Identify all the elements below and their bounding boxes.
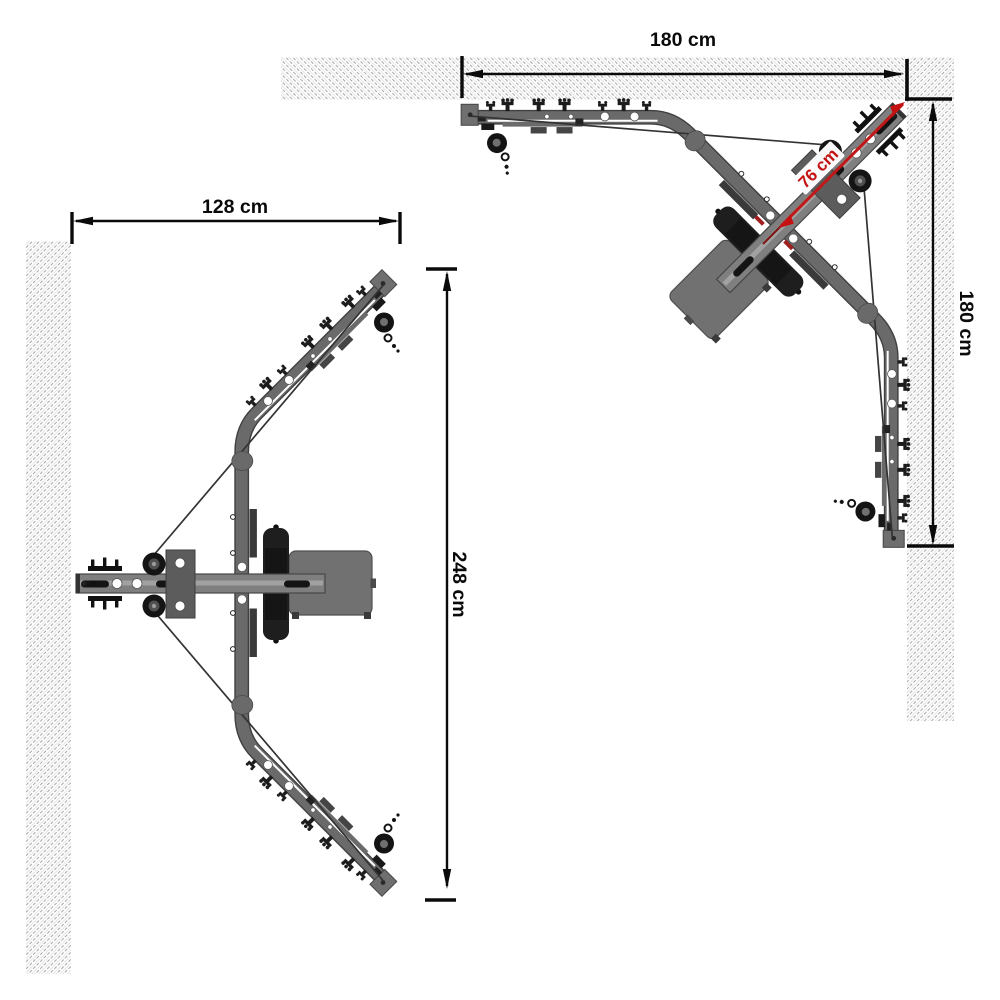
svg-text:180 cm: 180 cm [650,29,716,51]
svg-text:248 cm: 248 cm [448,551,470,617]
svg-text:128 cm: 128 cm [202,196,268,218]
svg-text:180 cm: 180 cm [955,290,977,356]
